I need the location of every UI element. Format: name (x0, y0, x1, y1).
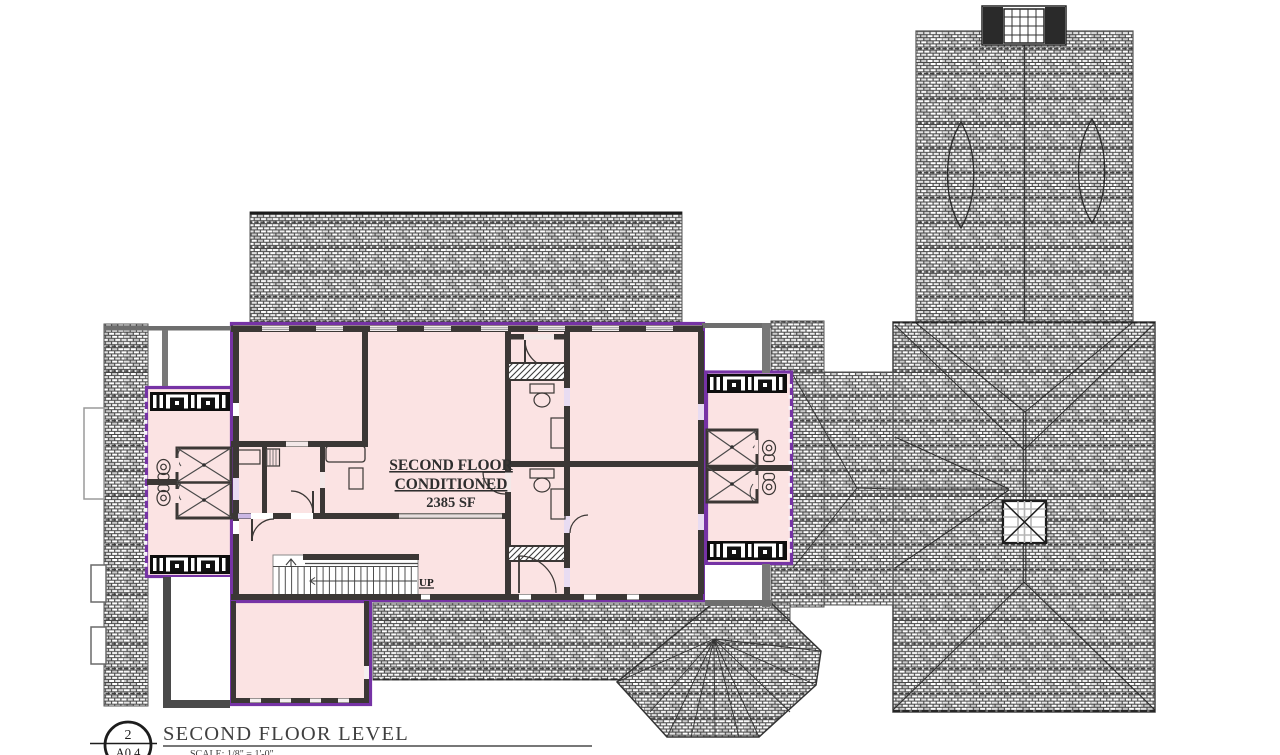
svg-text:SECOND FLOOR: SECOND FLOOR (389, 457, 513, 474)
svg-text:2: 2 (125, 728, 132, 743)
svg-text:SCALE: 1/8" = 1'-0": SCALE: 1/8" = 1'-0" (190, 749, 274, 755)
svg-text:CONDITIONED: CONDITIONED (395, 476, 508, 493)
svg-text:A0.4: A0.4 (116, 746, 141, 755)
svg-text:SECOND FLOOR LEVEL: SECOND FLOOR LEVEL (163, 723, 409, 745)
svg-text:UP: UP (419, 577, 434, 589)
svg-text:2385 SF: 2385 SF (426, 495, 476, 511)
